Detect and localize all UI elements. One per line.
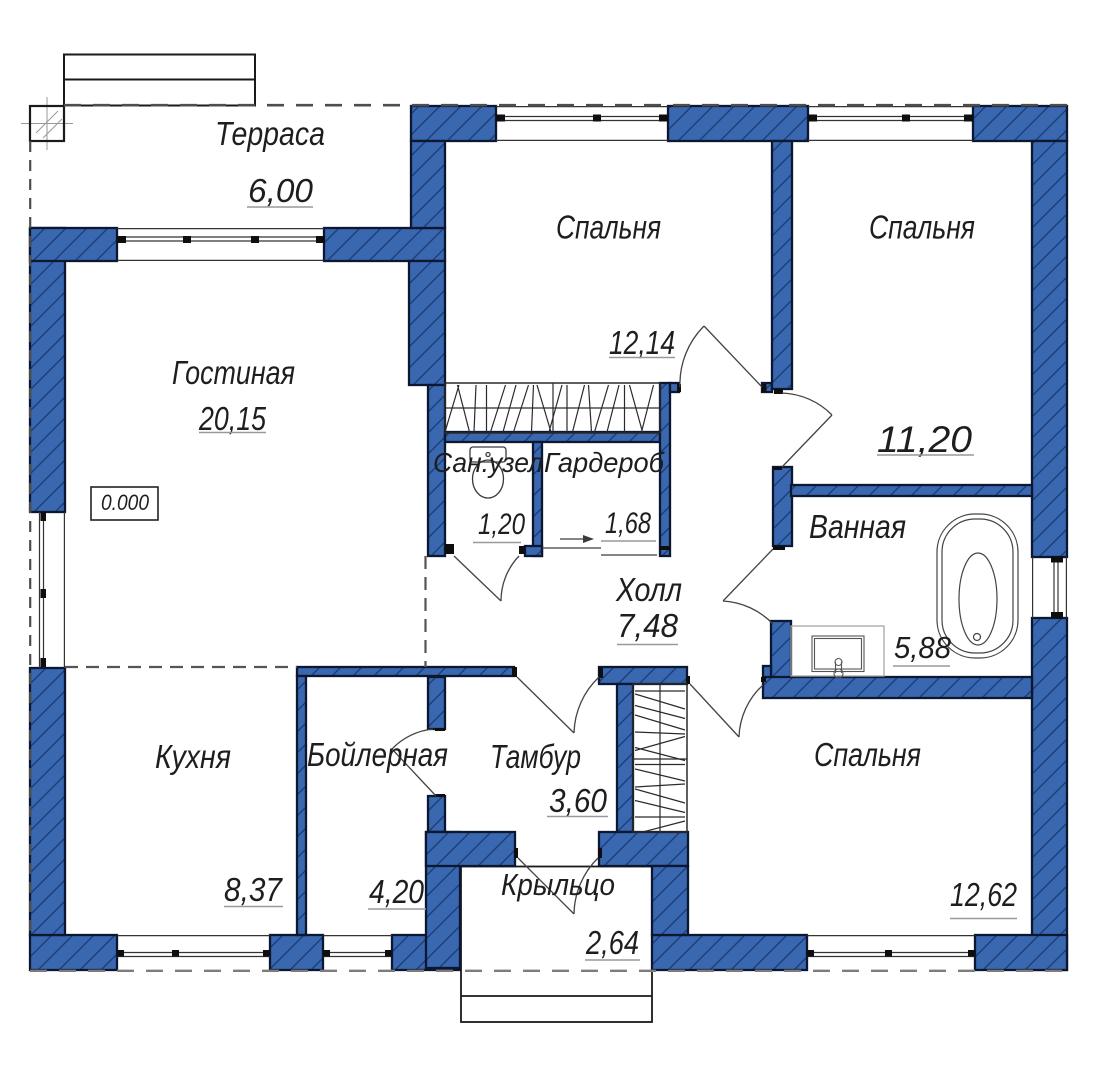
svg-text:4,20: 4,20 xyxy=(369,873,425,910)
svg-text:Тамбур: Тамбур xyxy=(490,738,581,775)
svg-text:7,48: 7,48 xyxy=(617,607,679,644)
svg-text:3,60: 3,60 xyxy=(549,782,608,819)
svg-text:Кухня: Кухня xyxy=(155,738,231,775)
svg-text:8,37: 8,37 xyxy=(224,871,283,908)
svg-text:Гостиная: Гостиная xyxy=(172,354,295,391)
svg-text:6,00: 6,00 xyxy=(248,172,314,209)
svg-text:1,68: 1,68 xyxy=(605,507,651,540)
svg-text:Ванная: Ванная xyxy=(809,508,906,545)
svg-text:5,88: 5,88 xyxy=(894,630,952,665)
svg-text:20,15: 20,15 xyxy=(198,400,266,437)
svg-text:0.000: 0.000 xyxy=(101,490,150,515)
svg-text:Холл: Холл xyxy=(615,571,682,608)
svg-text:Сан.узел: Сан.узел xyxy=(433,447,543,478)
svg-text:11,20: 11,20 xyxy=(877,419,972,460)
svg-text:Бойлерная: Бойлерная xyxy=(307,736,448,773)
svg-text:12,14: 12,14 xyxy=(609,324,675,361)
svg-text:Спальня: Спальня xyxy=(869,209,975,246)
svg-text:Гардероб: Гардероб xyxy=(544,447,665,478)
svg-text:12,62: 12,62 xyxy=(950,876,1017,913)
svg-text:1,20: 1,20 xyxy=(478,508,525,541)
svg-text:Терраса: Терраса xyxy=(215,115,325,152)
svg-text:2,64: 2,64 xyxy=(585,924,639,961)
svg-text:Крыльцо: Крыльцо xyxy=(501,867,615,902)
svg-text:Спальня: Спальня xyxy=(556,209,661,246)
svg-text:Спальня: Спальня xyxy=(814,736,921,773)
